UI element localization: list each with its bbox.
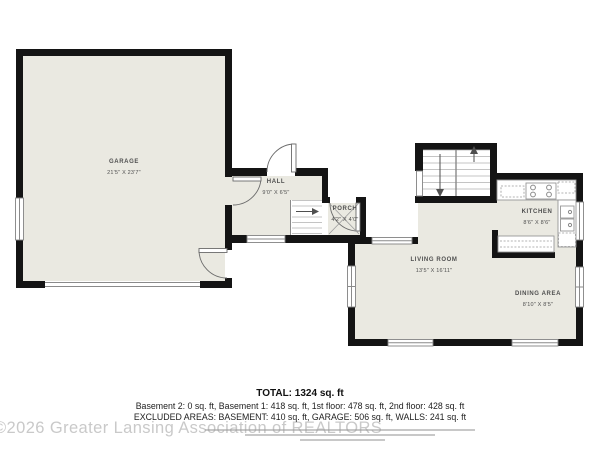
garage-door (45, 283, 200, 287)
room-name: PORCH (331, 206, 358, 213)
fine-print-line (205, 429, 475, 431)
stairs-basement (290, 200, 322, 235)
room-label-dining-area: DINING AREA 8'10" X 8'5" (515, 291, 561, 308)
window-dining-bottom (512, 340, 558, 347)
fine-print-line (245, 434, 435, 436)
room-label-porch: PORCH 4'2" X 4'0" (331, 206, 358, 223)
stair-rail-opening (417, 171, 423, 196)
room-dims: 9'0" X 6'5" (262, 190, 289, 196)
room-label-kitchen: KITCHEN 8'6" X 8'6" (522, 209, 553, 226)
window-living-left (348, 266, 356, 307)
window-garage-left (16, 198, 24, 240)
room-label-garage: GARAGE 21'5" X 23'7" (107, 159, 141, 176)
window-living-bottom (388, 340, 433, 347)
room-dims: 8'10" X 8'5" (515, 302, 561, 308)
stairs-upper (423, 146, 490, 197)
room-label-living-room: LIVING ROOM 13'5" X 16'11" (411, 257, 458, 274)
room-dims: 13'5" X 16'11" (411, 268, 458, 274)
room-name: HALL (262, 179, 289, 186)
window-dining-right (576, 267, 584, 307)
area-summary: TOTAL: 1324 sq. ft Basement 2: 0 sq. ft,… (0, 388, 600, 422)
room-dims: 21'5" X 23'7" (107, 170, 141, 176)
room-name: KITCHEN (522, 209, 553, 216)
floor-areas-line: Basement 2: 0 sq. ft, Basement 1: 418 sq… (0, 401, 600, 411)
room-dims: 8'6" X 8'6" (522, 220, 553, 226)
window-living-front (372, 238, 412, 245)
room-name: LIVING ROOM (411, 257, 458, 264)
peninsula-counter (498, 236, 554, 252)
total-area-line: TOTAL: 1324 sq. ft (0, 388, 600, 400)
room-name: DINING AREA (515, 291, 561, 298)
window-hall-front (247, 236, 285, 243)
floorplan-drawing (0, 0, 600, 390)
fine-print-line (300, 439, 385, 441)
front-door (267, 144, 296, 172)
window-kitchen-right (576, 202, 584, 240)
stove (526, 183, 556, 199)
excluded-areas-line: EXCLUDED AREAS: BASEMENT: 410 sq. ft, GA… (0, 412, 600, 422)
room-label-hall: HALL 9'0" X 6'5" (262, 179, 289, 196)
floorplan-page: GARAGE 21'5" X 23'7" HALL 9'0" X 6'5" PO… (0, 0, 600, 450)
room-dims: 4'2" X 4'0" (331, 217, 358, 223)
room-name: GARAGE (107, 159, 141, 166)
